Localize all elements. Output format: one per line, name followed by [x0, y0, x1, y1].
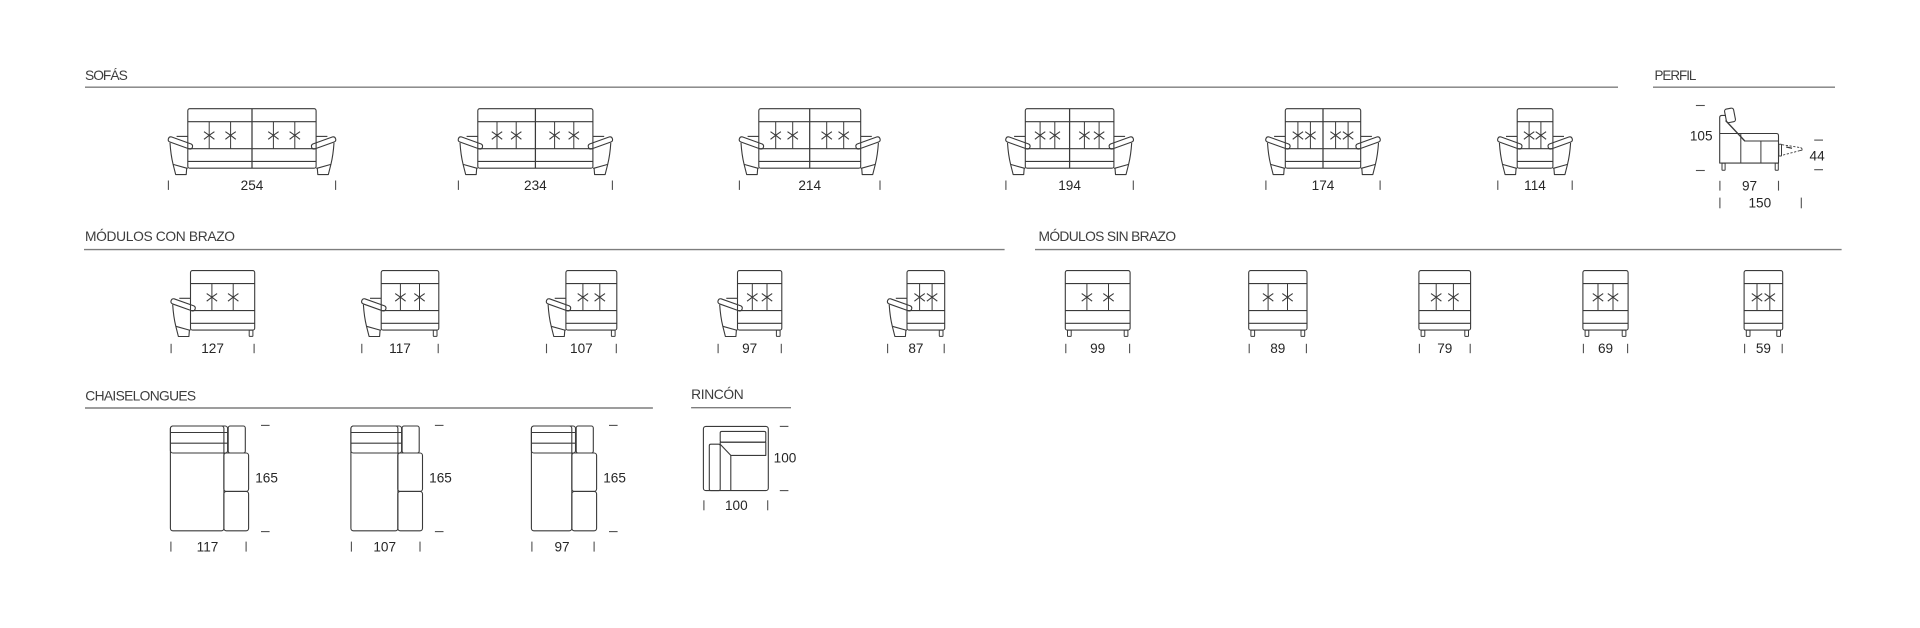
- svg-text:79: 79: [1437, 341, 1452, 356]
- svg-text:99: 99: [1090, 341, 1105, 356]
- svg-text:69: 69: [1598, 341, 1613, 356]
- svg-text:SOFÁS: SOFÁS: [85, 67, 128, 83]
- svg-text:MÓDULOS CON BRAZO: MÓDULOS CON BRAZO: [85, 228, 235, 244]
- svg-text:100: 100: [774, 451, 797, 466]
- svg-text:44: 44: [1810, 148, 1826, 163]
- svg-text:CHAISELONGUES: CHAISELONGUES: [85, 388, 196, 403]
- svg-text:254: 254: [241, 178, 264, 193]
- svg-text:127: 127: [201, 341, 224, 356]
- svg-text:RINCÓN: RINCÓN: [691, 386, 743, 402]
- svg-text:107: 107: [570, 341, 593, 356]
- svg-text:165: 165: [255, 470, 278, 485]
- svg-text:107: 107: [373, 539, 396, 554]
- svg-text:165: 165: [429, 470, 452, 485]
- svg-text:150: 150: [1748, 196, 1771, 211]
- svg-text:97: 97: [1742, 178, 1757, 193]
- svg-text:100: 100: [725, 498, 748, 513]
- svg-text:194: 194: [1058, 178, 1081, 193]
- svg-text:87: 87: [908, 341, 923, 356]
- svg-text:MÓDULOS SIN BRAZO: MÓDULOS SIN BRAZO: [1039, 228, 1177, 244]
- svg-text:97: 97: [742, 341, 757, 356]
- svg-text:165: 165: [603, 470, 626, 485]
- svg-text:97: 97: [554, 539, 569, 554]
- svg-text:117: 117: [389, 341, 411, 356]
- svg-text:234: 234: [524, 178, 547, 193]
- svg-text:174: 174: [1312, 178, 1335, 193]
- svg-text:214: 214: [798, 178, 821, 193]
- svg-text:59: 59: [1756, 341, 1771, 356]
- svg-text:PERFIL: PERFIL: [1655, 68, 1696, 83]
- svg-text:89: 89: [1270, 341, 1285, 356]
- svg-text:114: 114: [1524, 178, 1546, 193]
- svg-text:105: 105: [1690, 128, 1713, 143]
- svg-text:117: 117: [197, 539, 219, 554]
